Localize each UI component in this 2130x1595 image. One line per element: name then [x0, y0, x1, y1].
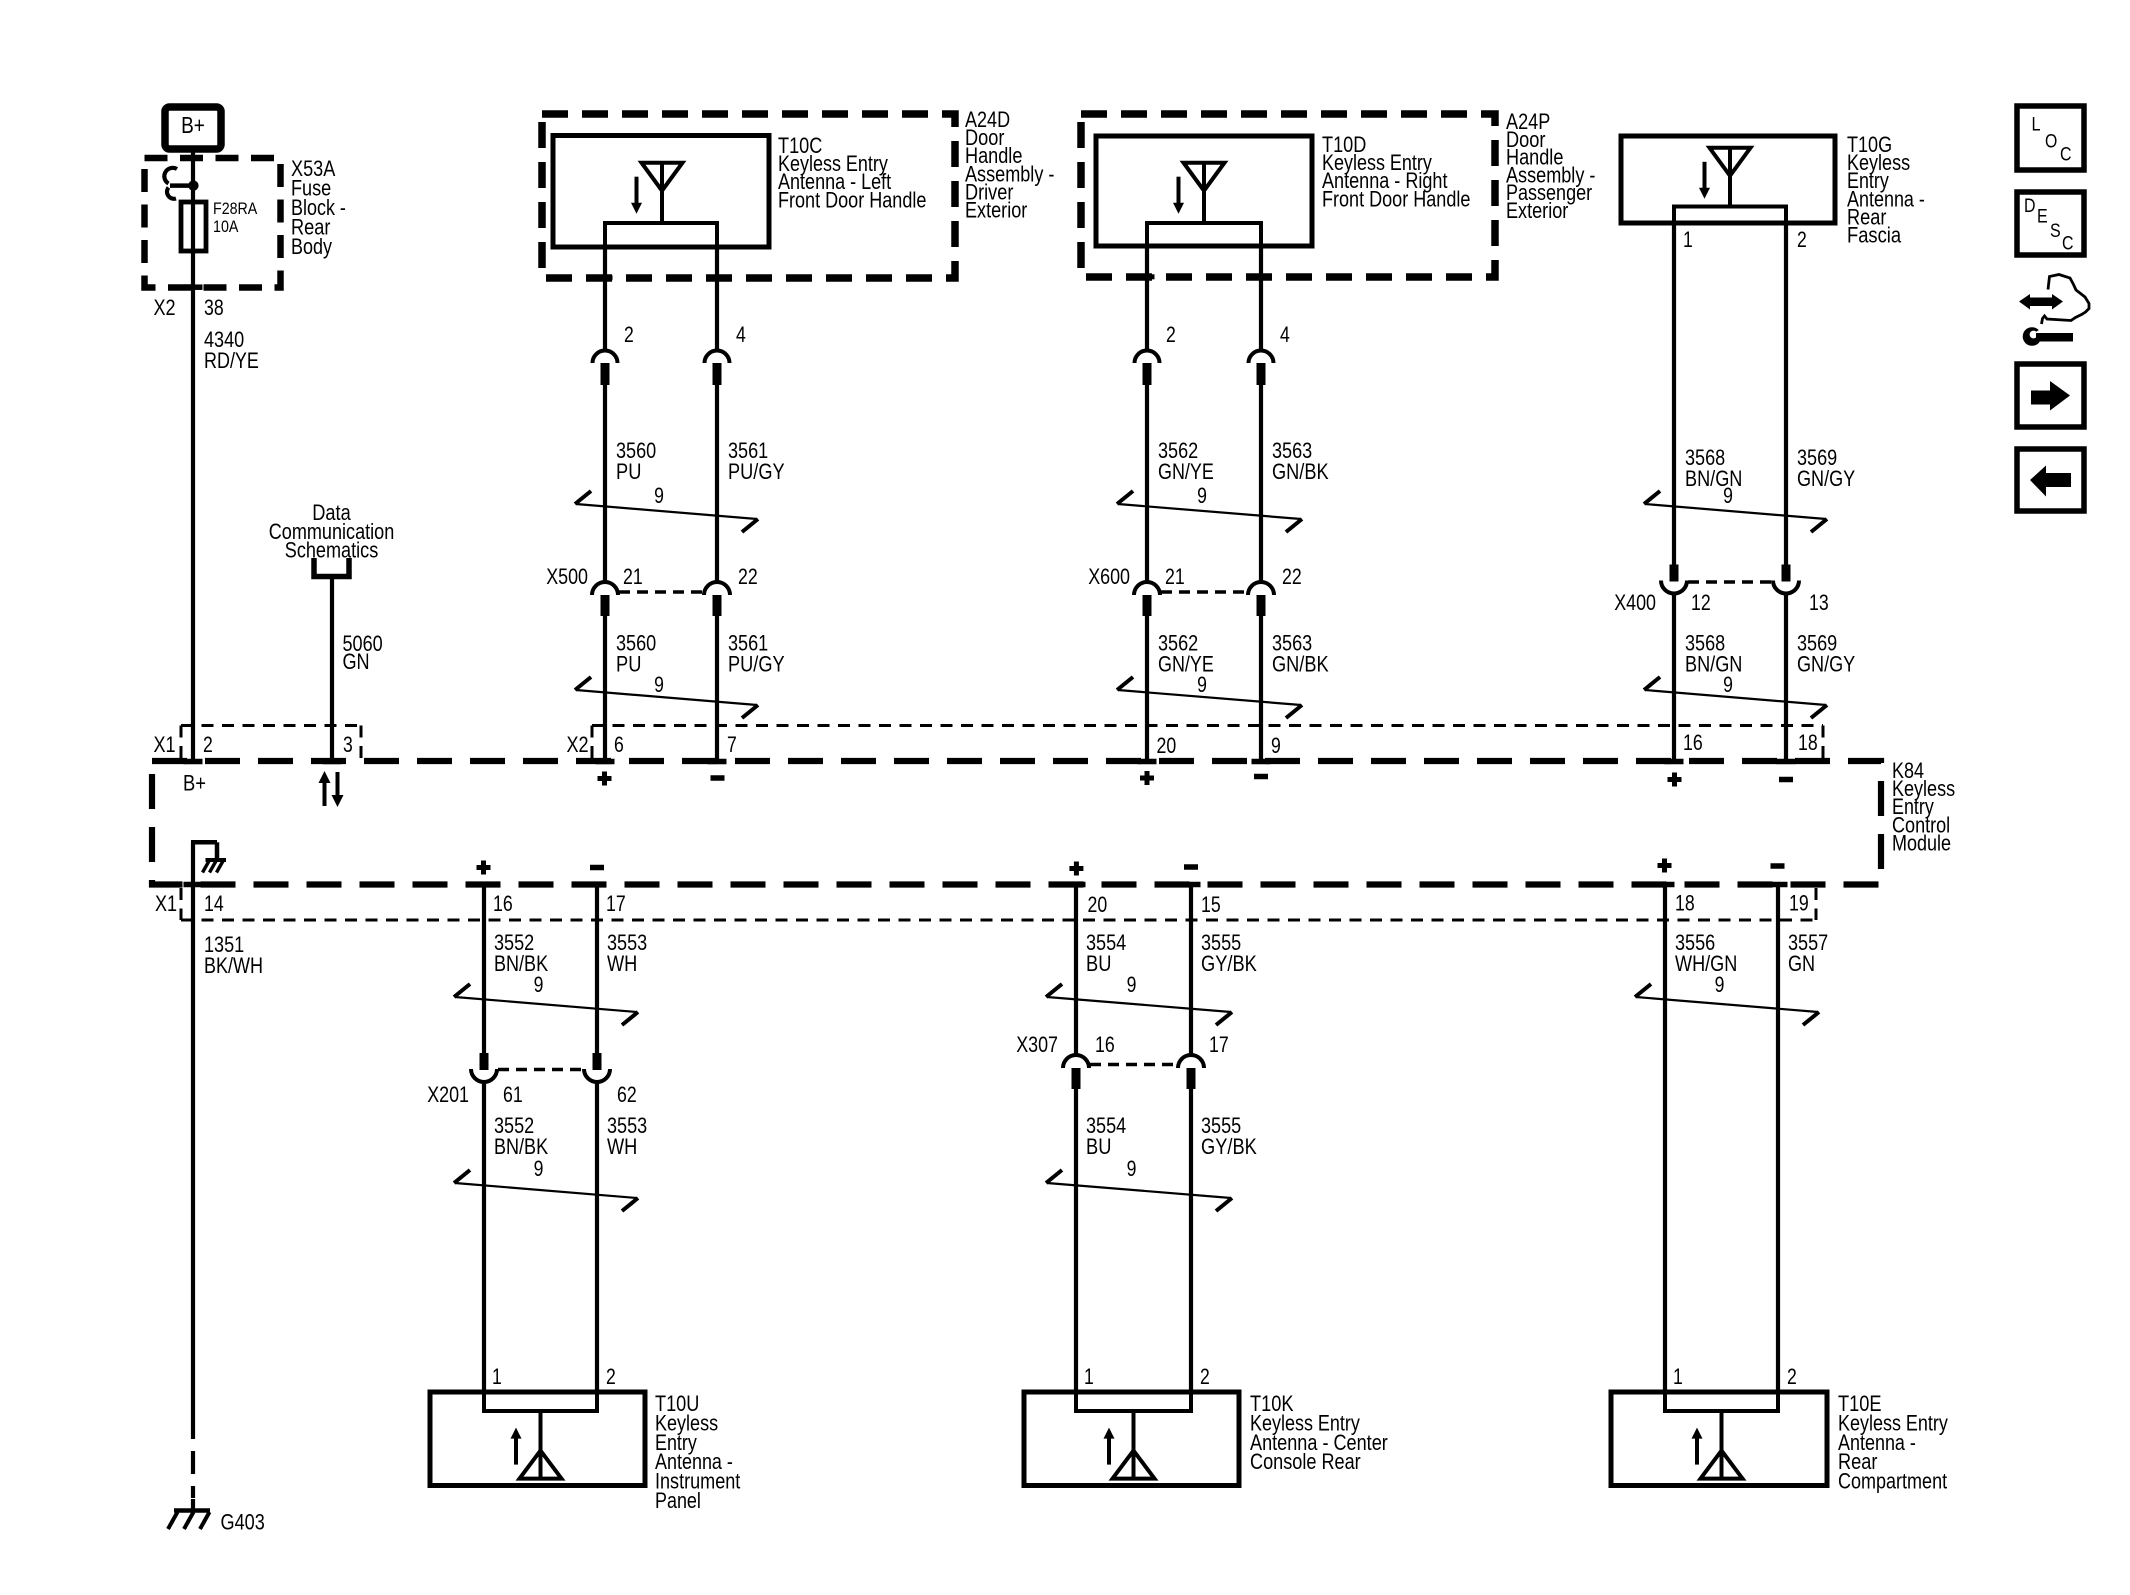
svg-text:X1: X1: [154, 732, 176, 757]
svg-text:Fascia: Fascia: [1847, 223, 1902, 248]
svg-text:X2: X2: [567, 732, 589, 757]
svg-text:20: 20: [1088, 892, 1108, 917]
svg-text:PU/GY: PU/GY: [728, 459, 785, 484]
svg-text:4: 4: [736, 322, 746, 347]
svg-text:BK/WH: BK/WH: [204, 953, 263, 978]
svg-text:Compartment: Compartment: [1838, 1469, 1947, 1494]
svg-text:1: 1: [492, 1364, 502, 1389]
svg-text:2: 2: [1787, 1364, 1797, 1389]
svg-text:Console Rear: Console Rear: [1250, 1449, 1361, 1474]
svg-text:2: 2: [1200, 1364, 1210, 1389]
svg-text:16: 16: [1683, 730, 1703, 755]
svg-text:9: 9: [534, 1156, 544, 1181]
svg-text:GN/GY: GN/GY: [1797, 466, 1855, 491]
svg-text:21: 21: [623, 564, 643, 589]
svg-text:12: 12: [1691, 590, 1711, 615]
svg-text:17: 17: [1209, 1032, 1229, 1057]
svg-text:WH: WH: [607, 951, 637, 976]
svg-text:BU: BU: [1086, 1134, 1111, 1159]
svg-text:X500: X500: [546, 564, 588, 589]
svg-text:O: O: [2045, 132, 2057, 153]
svg-text:B+: B+: [183, 771, 206, 796]
svg-text:14: 14: [204, 891, 224, 916]
svg-text:GN: GN: [343, 649, 370, 674]
svg-text:20: 20: [1157, 733, 1177, 758]
svg-text:2: 2: [1797, 227, 1807, 252]
svg-text:9: 9: [1127, 1156, 1137, 1181]
svg-text:GY/BK: GY/BK: [1201, 951, 1257, 976]
svg-text:X600: X600: [1088, 564, 1130, 589]
svg-text:Panel: Panel: [655, 1488, 701, 1513]
svg-text:13: 13: [1809, 590, 1829, 615]
svg-text:9: 9: [654, 483, 664, 508]
svg-text:18: 18: [1798, 730, 1818, 755]
svg-text:6: 6: [614, 732, 624, 757]
svg-text:F28RA: F28RA: [213, 199, 258, 218]
svg-text:X307: X307: [1016, 1032, 1058, 1057]
svg-text:GN/BK: GN/BK: [1272, 652, 1329, 677]
svg-text:Exterior: Exterior: [965, 198, 1027, 223]
svg-text:1: 1: [1683, 227, 1693, 252]
svg-text:22: 22: [738, 564, 758, 589]
svg-text:L: L: [2032, 115, 2041, 136]
svg-text:X201: X201: [427, 1082, 469, 1107]
svg-text:Front Door Handle: Front Door Handle: [1322, 186, 1470, 211]
svg-text:G403: G403: [221, 1510, 265, 1535]
svg-text:1: 1: [1673, 1364, 1683, 1389]
svg-text:9: 9: [1715, 972, 1725, 997]
svg-text:2: 2: [1166, 322, 1176, 347]
svg-text:9: 9: [1127, 972, 1137, 997]
svg-text:10A: 10A: [213, 217, 239, 236]
svg-text:RD/YE: RD/YE: [204, 348, 259, 373]
svg-text:16: 16: [1095, 1032, 1115, 1057]
svg-text:X1: X1: [155, 891, 177, 916]
svg-text:2: 2: [606, 1364, 616, 1389]
svg-text:9: 9: [1723, 672, 1733, 697]
svg-text:PU: PU: [616, 652, 641, 677]
svg-text:GN/GY: GN/GY: [1797, 652, 1855, 677]
svg-text:9: 9: [1723, 483, 1733, 508]
svg-text:X2: X2: [154, 295, 176, 320]
svg-text:18: 18: [1675, 891, 1695, 916]
svg-text:D: D: [2024, 196, 2036, 217]
svg-text:C: C: [2060, 145, 2072, 166]
svg-text:S: S: [2050, 221, 2061, 242]
svg-text:GN/YE: GN/YE: [1158, 459, 1214, 484]
svg-text:16: 16: [493, 891, 513, 916]
svg-text:Exterior: Exterior: [1506, 198, 1568, 223]
svg-text:9: 9: [1271, 733, 1281, 758]
svg-text:61: 61: [503, 1082, 523, 1107]
svg-text:62: 62: [617, 1082, 637, 1107]
svg-text:2: 2: [624, 322, 634, 347]
svg-text:E: E: [2037, 207, 2048, 228]
svg-text:B+: B+: [181, 112, 205, 138]
svg-text:4: 4: [1280, 322, 1290, 347]
svg-text:21: 21: [1165, 564, 1185, 589]
svg-text:WH: WH: [607, 1134, 637, 1159]
svg-text:C: C: [2062, 234, 2074, 255]
svg-text:9: 9: [654, 672, 664, 697]
svg-text:1: 1: [1084, 1364, 1094, 1389]
svg-text:X400: X400: [1614, 590, 1656, 615]
svg-text:3: 3: [343, 732, 353, 757]
svg-text:9: 9: [1197, 483, 1207, 508]
svg-text:7: 7: [727, 732, 737, 757]
svg-text:19: 19: [1789, 891, 1809, 916]
svg-text:GN: GN: [1788, 951, 1815, 976]
svg-text:WH/GN: WH/GN: [1675, 951, 1737, 976]
svg-text:17: 17: [606, 891, 626, 916]
svg-text:BN/GN: BN/GN: [1685, 466, 1742, 491]
svg-text:BU: BU: [1086, 951, 1111, 976]
svg-text:Front Door Handle: Front Door Handle: [778, 187, 926, 212]
svg-text:GN/BK: GN/BK: [1272, 459, 1329, 484]
svg-text:Body: Body: [291, 234, 332, 259]
svg-text:38: 38: [204, 295, 224, 320]
svg-text:15: 15: [1201, 892, 1221, 917]
svg-text:BN/GN: BN/GN: [1685, 652, 1742, 677]
svg-text:Schematics: Schematics: [285, 538, 379, 563]
svg-text:9: 9: [534, 972, 544, 997]
svg-text:GY/BK: GY/BK: [1201, 1134, 1257, 1159]
svg-text:Module: Module: [1892, 830, 1951, 855]
svg-text:PU: PU: [616, 459, 641, 484]
svg-text:9: 9: [1197, 672, 1207, 697]
svg-text:22: 22: [1282, 564, 1302, 589]
svg-text:2: 2: [203, 732, 213, 757]
svg-text:PU/GY: PU/GY: [728, 652, 785, 677]
